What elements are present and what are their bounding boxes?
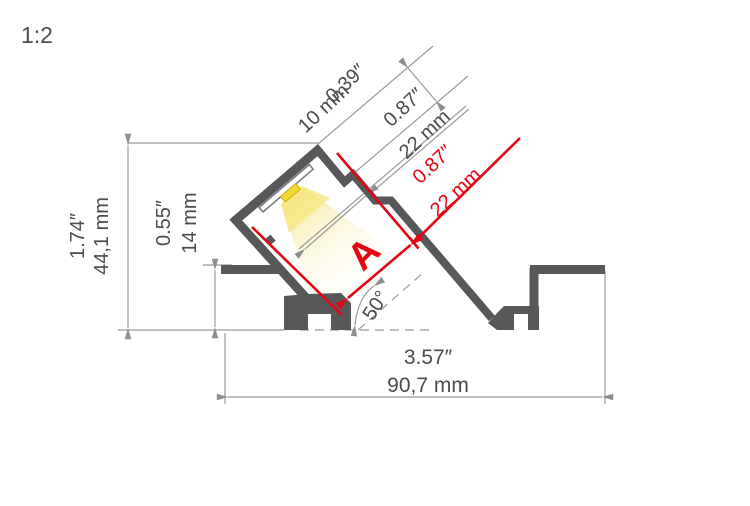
- technical-drawing: 1:2: [0, 0, 750, 506]
- left-foot: [284, 293, 351, 330]
- scale-label: 1:2: [21, 22, 53, 48]
- width-inches-label: 3.57″: [404, 346, 453, 369]
- dimension-labels: 1.74″ 44,1 mm 0.55″ 14 mm 0.39″ 10 mm 0.…: [67, 60, 469, 397]
- height-inches-label: 1.74″: [67, 213, 89, 259]
- angle-label: 50°: [359, 287, 394, 324]
- width-mm-label: 90,7 mm: [387, 374, 469, 397]
- height-mm-label: 44,1 mm: [91, 197, 113, 275]
- recess-mm-label: 14 mm: [179, 192, 201, 253]
- recess-inches-label: 0.55″: [153, 200, 175, 246]
- red-dimension-labels: 0.87″ 22 mm A: [340, 141, 486, 279]
